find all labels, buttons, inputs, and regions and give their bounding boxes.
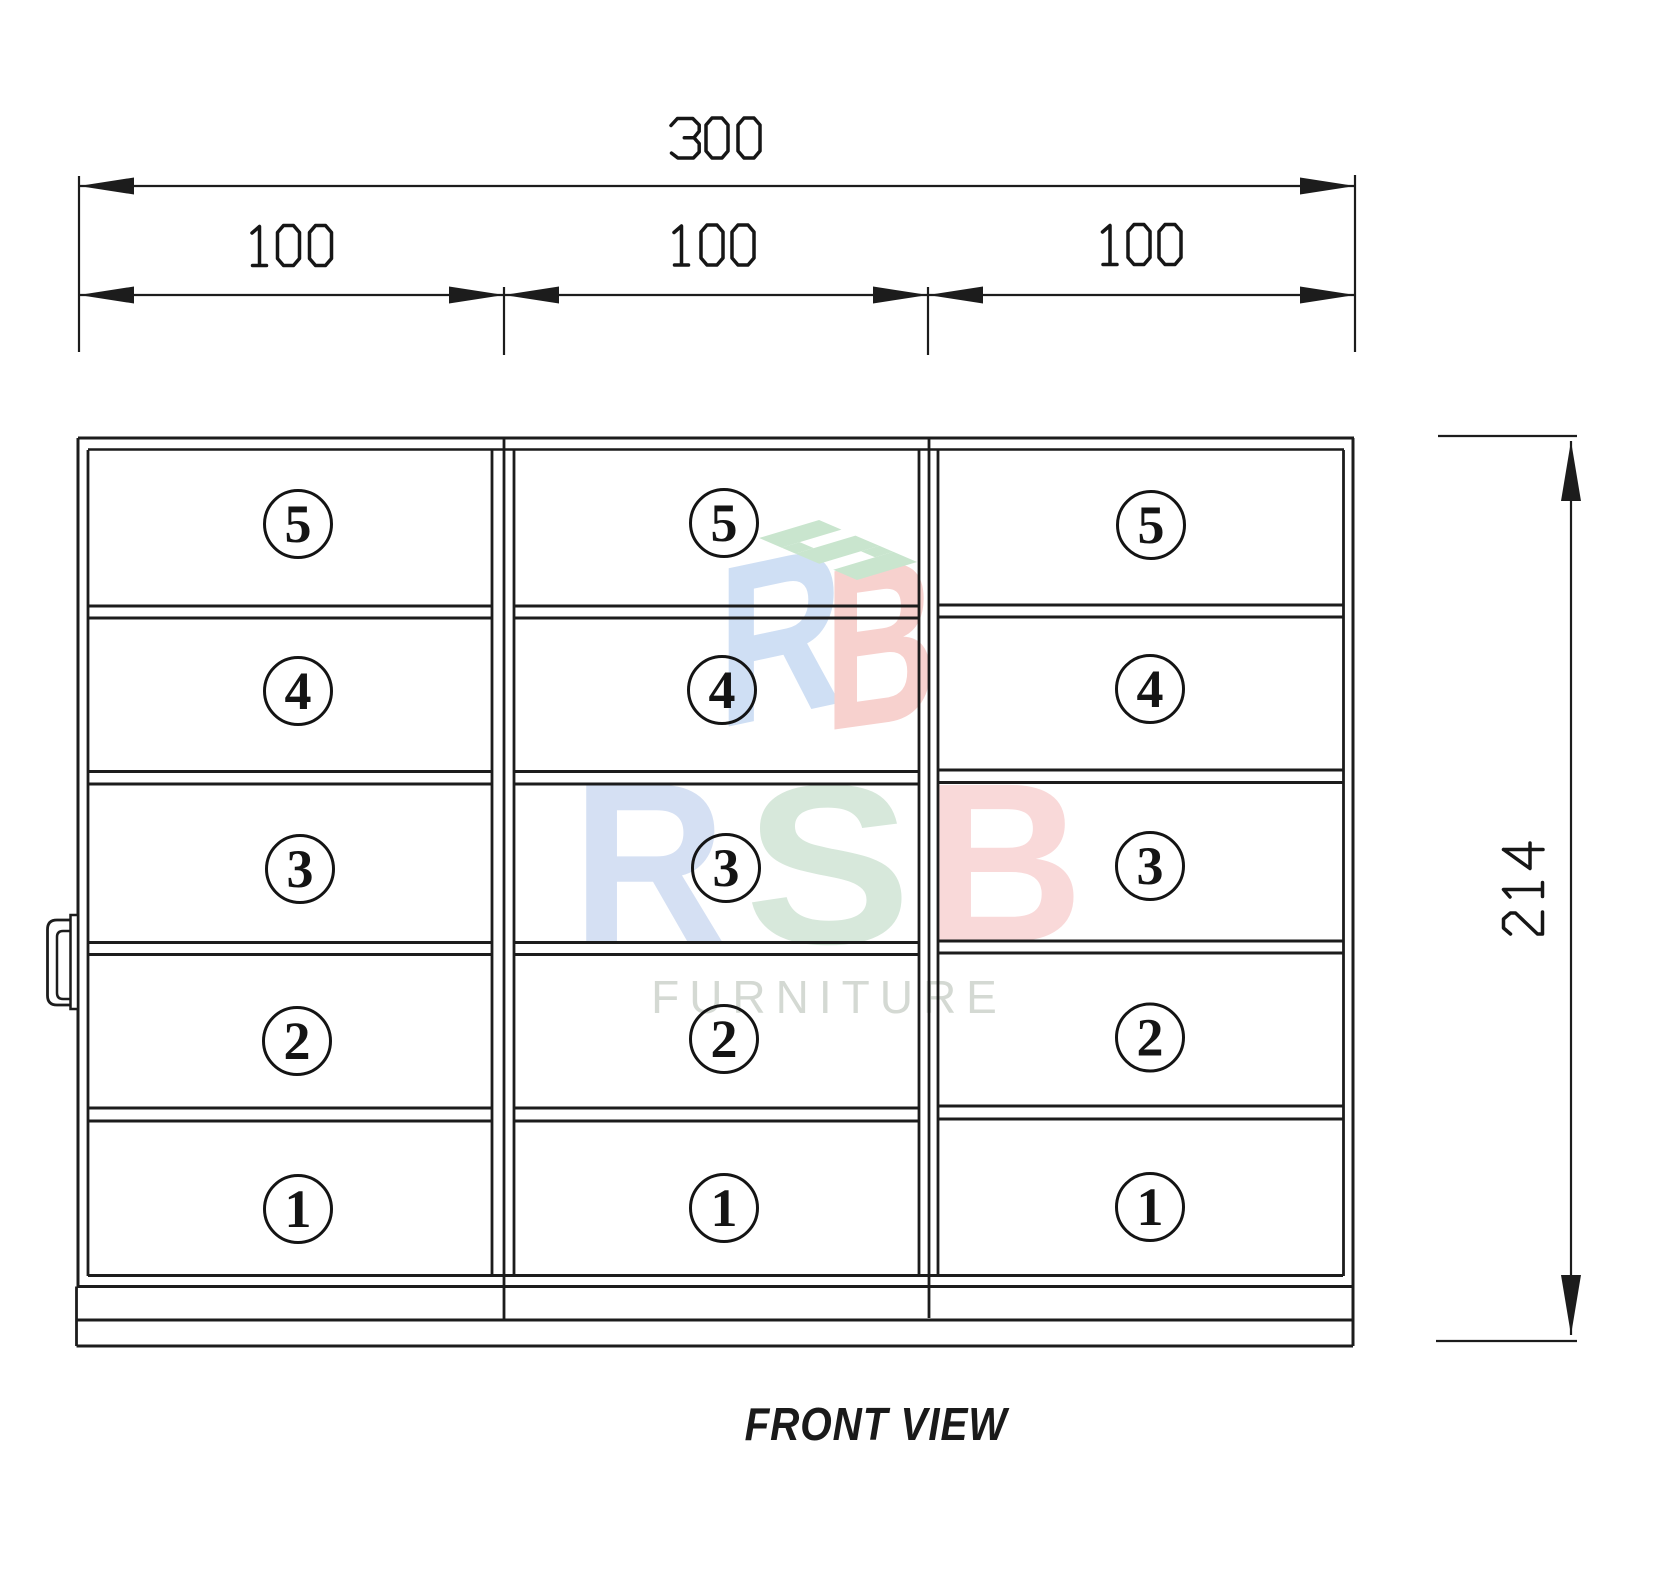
svg-text:4: 4 bbox=[1137, 659, 1164, 719]
svg-text:2: 2 bbox=[711, 1009, 738, 1069]
svg-text:FURNITURE: FURNITURE bbox=[651, 971, 1007, 1023]
svg-text:1: 1 bbox=[1137, 1177, 1164, 1237]
svg-text:3: 3 bbox=[1137, 836, 1164, 896]
svg-text:3: 3 bbox=[287, 839, 314, 899]
svg-text:2: 2 bbox=[1137, 1008, 1164, 1068]
svg-text:R: R bbox=[572, 736, 726, 989]
svg-text:3: 3 bbox=[713, 838, 740, 898]
svg-text:1: 1 bbox=[711, 1178, 738, 1238]
svg-text:5: 5 bbox=[285, 494, 312, 554]
svg-text:5: 5 bbox=[1138, 495, 1165, 555]
svg-text:5: 5 bbox=[711, 493, 738, 553]
svg-text:4: 4 bbox=[709, 660, 736, 720]
svg-text:FRONT VIEW: FRONT VIEW bbox=[745, 1400, 1010, 1451]
svg-text:1: 1 bbox=[285, 1179, 312, 1239]
svg-text:2: 2 bbox=[284, 1011, 311, 1071]
svg-text:4: 4 bbox=[285, 661, 312, 721]
